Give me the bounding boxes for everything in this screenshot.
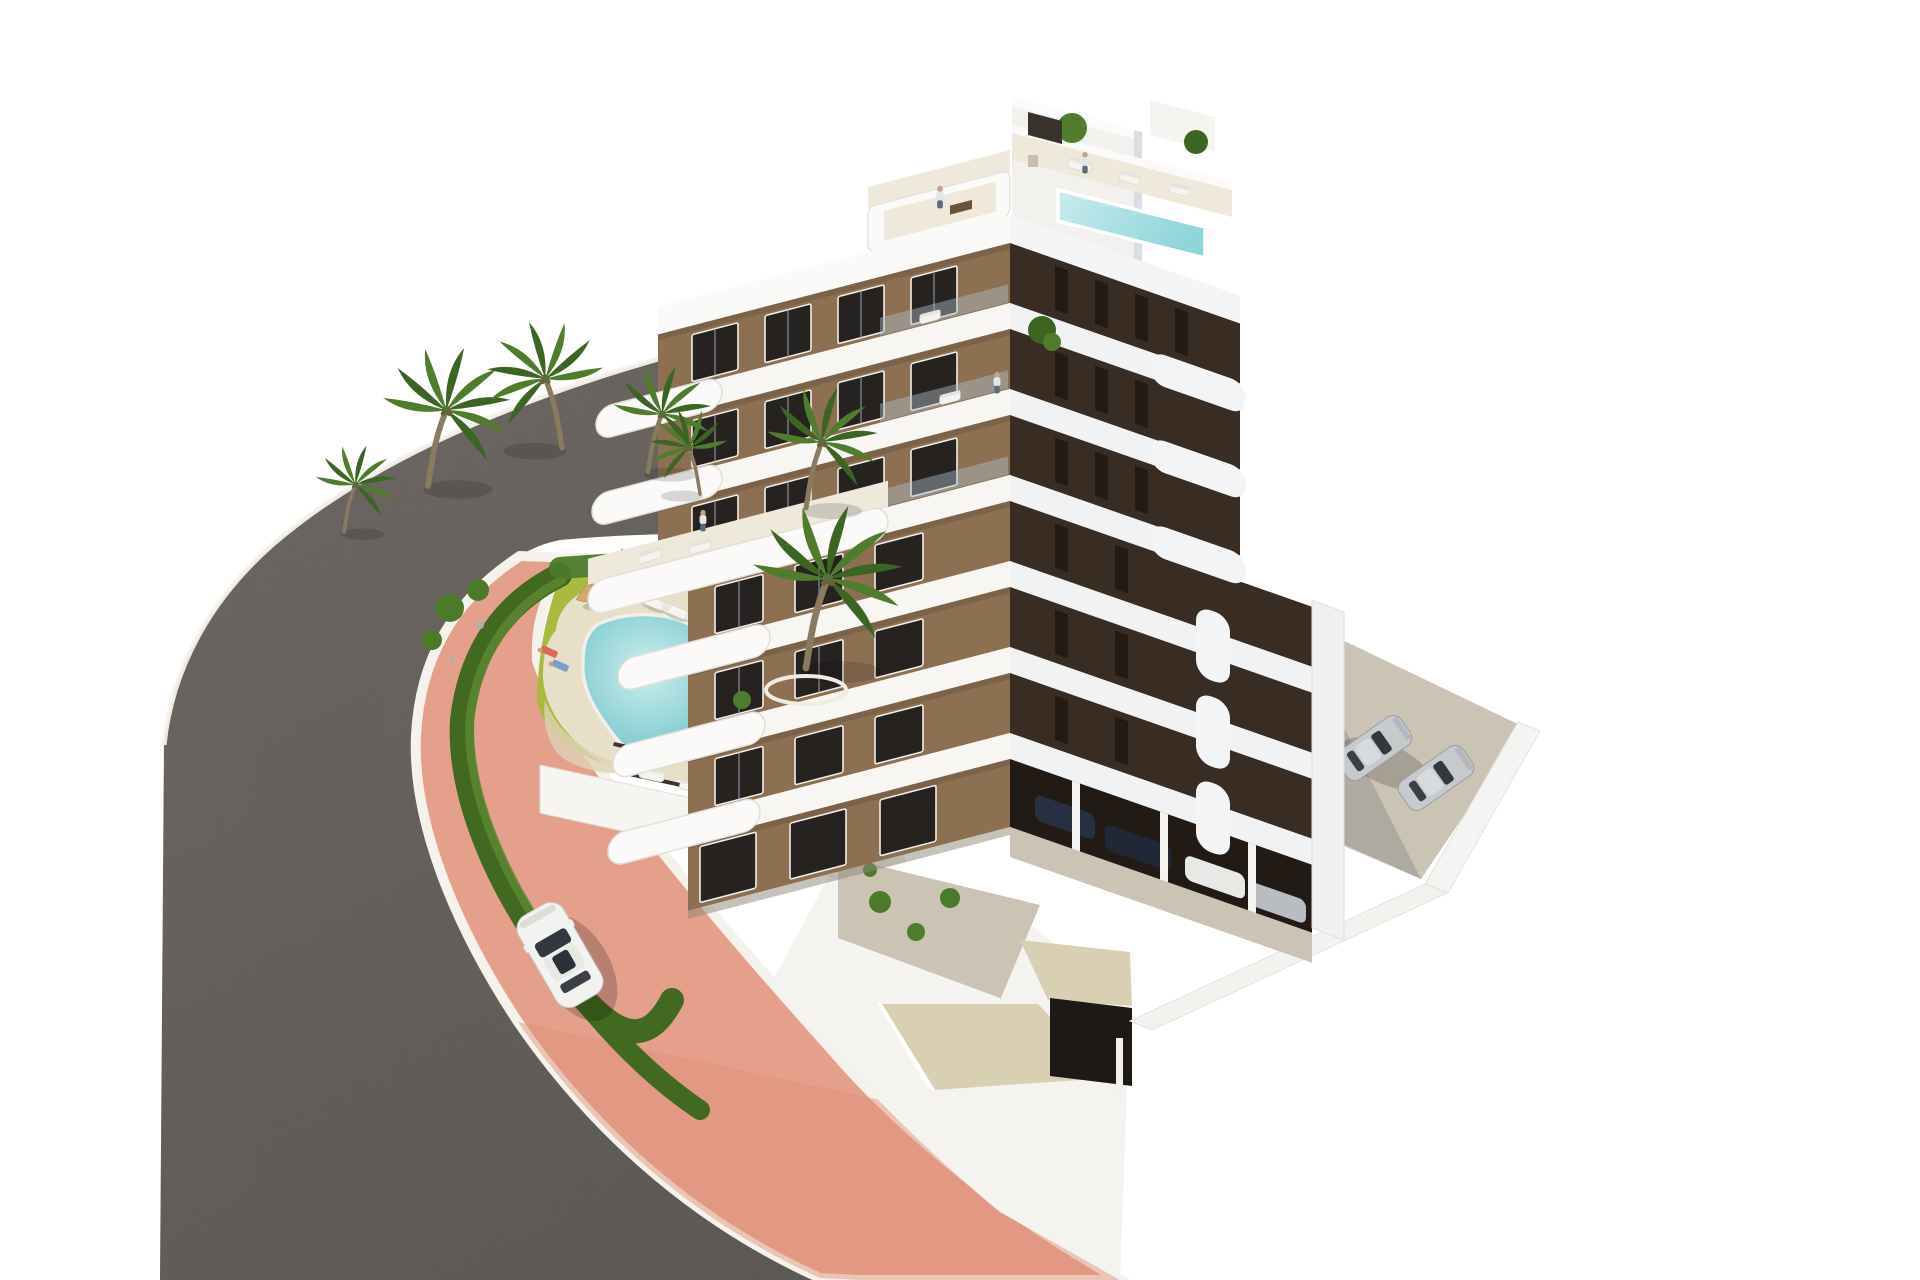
person xyxy=(936,186,943,209)
rooftop-tree xyxy=(1184,130,1208,154)
planter xyxy=(1028,155,1038,167)
person xyxy=(1082,152,1089,174)
parking-column xyxy=(1248,842,1256,913)
person xyxy=(994,372,1001,394)
parking-column xyxy=(1160,812,1168,883)
rendering-canvas xyxy=(0,0,1920,1280)
architectural-rendering xyxy=(0,0,1920,1280)
balcony-plant xyxy=(733,691,751,709)
apartment-building xyxy=(588,97,1344,963)
parking-column xyxy=(1072,781,1080,852)
balcony-tree xyxy=(1043,333,1061,351)
ramp-pillar xyxy=(1116,1038,1123,1094)
person xyxy=(700,510,707,532)
building-end-wall xyxy=(1312,600,1344,940)
